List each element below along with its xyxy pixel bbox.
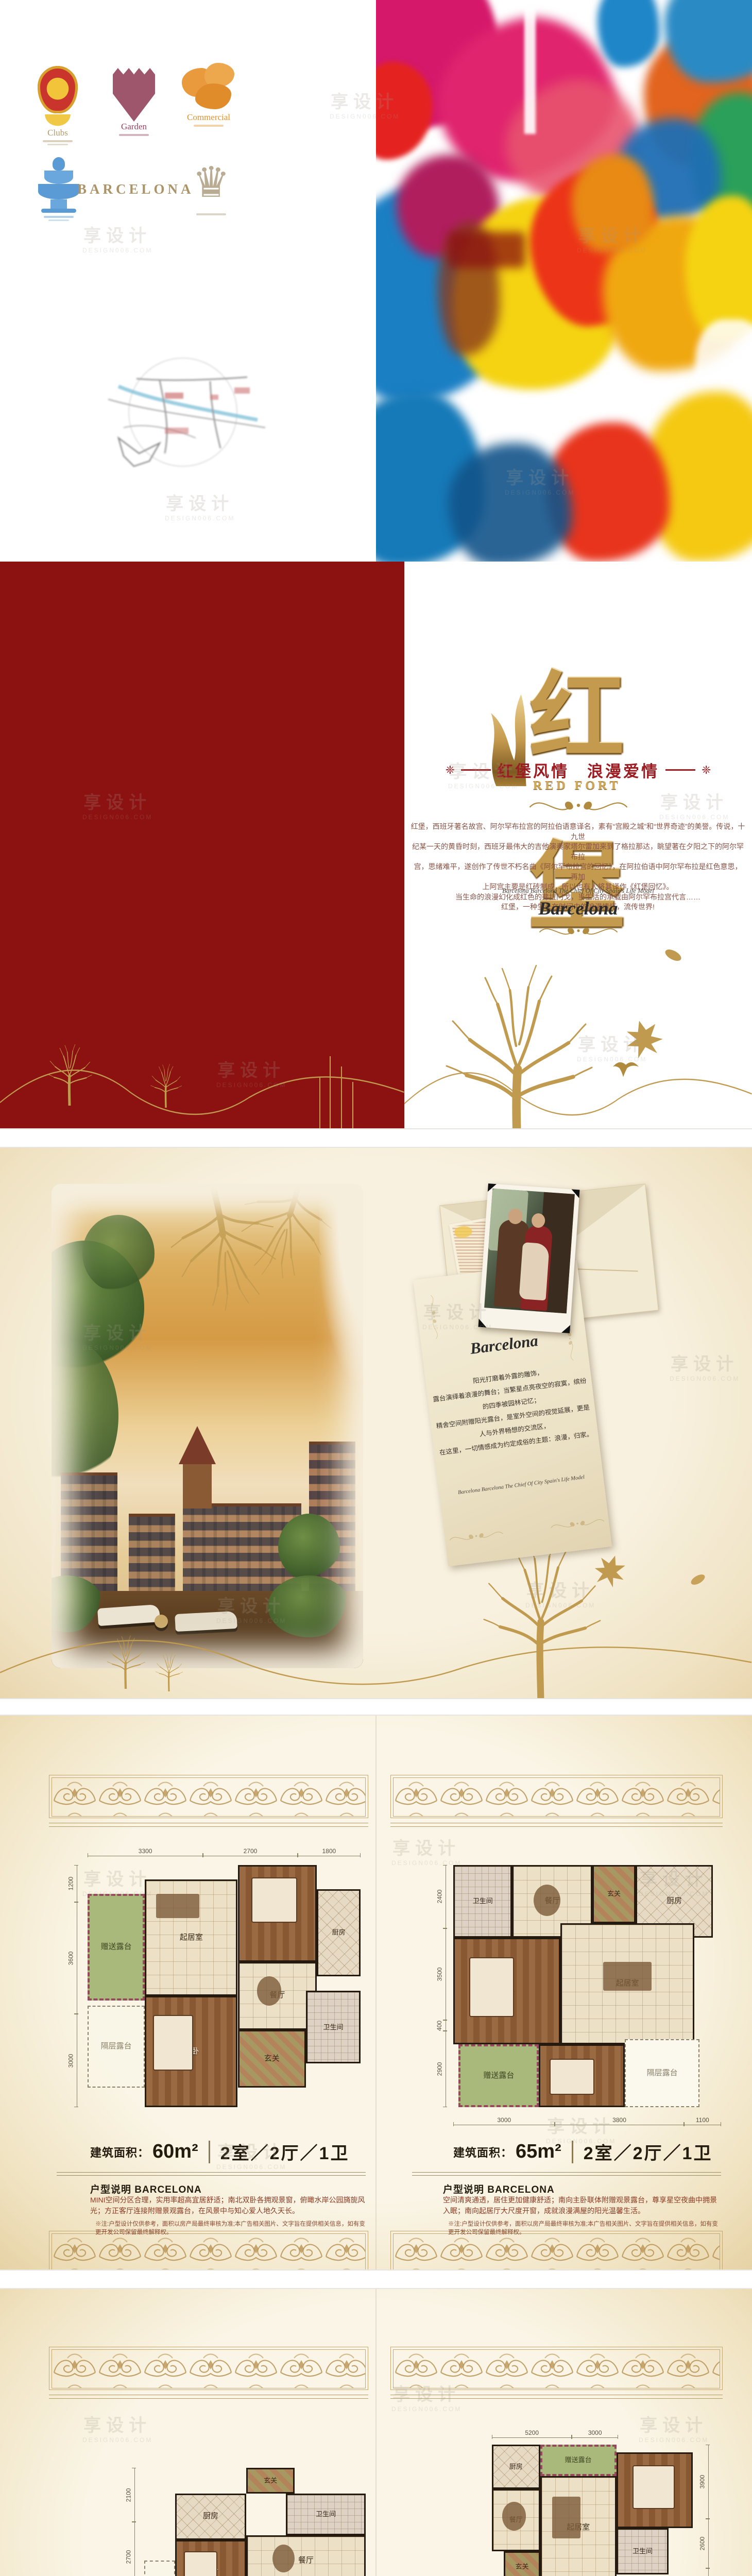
- band-rule: [49, 2395, 368, 2399]
- area-value: 60m²: [152, 2141, 198, 2163]
- band-rule: [390, 2395, 723, 2399]
- room-kitchen: 厨房: [175, 2494, 246, 2540]
- plan60-area-row: 建筑面积： 60m² 2室／2厅／1卫: [90, 2139, 349, 2164]
- emblem-garden: Garden: [106, 68, 162, 136]
- room-terrace: 赠送露台: [458, 2044, 539, 2107]
- room-kitchen: 厨房: [317, 1889, 361, 1976]
- band-rule: [390, 1823, 723, 1827]
- emblem-fountain: [33, 157, 84, 221]
- rule: [57, 2172, 366, 2176]
- gold-bird-icon: [613, 1059, 639, 1077]
- layout-value: 2室／2厅／1卫: [220, 2139, 350, 2164]
- emblem-commercial-label: Commercial: [173, 112, 245, 123]
- barcelona-script: Barcelona: [404, 897, 752, 919]
- floorplan-60: 赠送露台 隔层露台 起居室 主卧 次卧 餐厅 厨房 卫生间 玄关: [88, 1865, 361, 2107]
- emblem-garden-label: Garden: [106, 122, 162, 132]
- redfort-logo: 红堡 RED FORT: [482, 639, 703, 814]
- paragraph-line: 宫，思绪难平，遂创作了传世不朽名曲《阿尔罕布拉宫的回忆》，在阿拉伯语中阿尔罕布拉…: [411, 862, 745, 882]
- paragraph-line: 纪某一天的黄昏时刻，西班牙最伟大的吉他演奏家塔尔雷加来到了格拉那达，眺望著在夕阳…: [411, 842, 745, 862]
- room-terrace: 赠送露台: [88, 1894, 145, 2001]
- ornament-band: [390, 2231, 723, 2274]
- ornament-band: [49, 2347, 368, 2390]
- plan75-dims-right: 3900260048002400: [696, 2445, 709, 2576]
- ornament-band: [390, 2347, 723, 2390]
- area-value: 65m²: [516, 2141, 561, 2163]
- room-entry: 玄关: [504, 2551, 540, 2576]
- emblem-commercial-subline: [194, 125, 224, 127]
- emblem-clubs-subline2: [47, 144, 68, 145]
- room-terrace-top: 赠送露台: [540, 2445, 617, 2476]
- panel-gap: [0, 1698, 752, 1716]
- slogan-en: Barcelona Barcelona The Chief Of City Sp…: [404, 887, 752, 895]
- red-page: [0, 562, 404, 1128]
- couple-photo: [484, 1189, 575, 1314]
- panel-plans-60-65: 330027001800 120036003000 赠送露台 隔层露台 起居室 …: [0, 1716, 752, 2269]
- paint-splash-art: [376, 0, 752, 562]
- plan60-dims-left: 120036003000: [65, 1865, 77, 2107]
- emblem-clubs-subline: [43, 140, 73, 142]
- area-divider: [572, 2141, 573, 2163]
- tagline-dash-left: [461, 769, 491, 771]
- fountain-icon: [37, 157, 80, 214]
- tagline-text: 红堡风情 浪漫爱情: [497, 758, 659, 782]
- room-entry: 玄关: [592, 1865, 635, 1923]
- band-rule: [49, 1823, 368, 1827]
- garden-crest-icon: [113, 68, 155, 122]
- damask-corner: [416, 1292, 452, 1342]
- floorplan-75: 厨房 赠送露台 次卧 餐厅 起居室 玄关 卫生间 主卧 赠送露台: [492, 2445, 693, 2576]
- gold-tree-small-icon: [149, 1061, 182, 1108]
- plan75-dims-top: 52003000: [492, 2429, 618, 2438]
- blurred-title-area: [448, 232, 525, 268]
- gold-tree-icon: [440, 953, 595, 1128]
- paragraph-line: 红堡，西班牙著名故宫、阿尔罕布拉宫的阿拉伯语意译名，素有“宫殿之城”和“世界奇迹…: [411, 822, 745, 842]
- gold-leaf-icon: [689, 1572, 707, 1587]
- plan60-note: ※注:户型设计仅供参考，面积以房产局最终审核为准;本广告相关图片、文字旨在提供相…: [95, 2219, 368, 2236]
- tagline-ornament-left: ❈: [446, 764, 455, 777]
- tagline-ornament-right: ❈: [702, 764, 711, 777]
- room-dining: 餐厅: [246, 2535, 366, 2576]
- panel-gap: [0, 2269, 752, 2289]
- plan65-area-row: 建筑面积： 65m² 2室／2厅／1卫: [453, 2139, 712, 2164]
- panel-letter: Barcelona 阳光打磨着外露的雕饰， 露台演绎着浪漫的舞台；当繁星点亮夜空…: [0, 1148, 752, 1698]
- emblem-garden-subline: [119, 134, 149, 136]
- emblem-clubs: Clubs: [32, 66, 83, 145]
- emblem-fountain-subline2: [48, 219, 69, 221]
- gold-tree-small-icon: [46, 1041, 93, 1106]
- plan60-desc-header: 户型说明 BARCELONA: [90, 2182, 202, 2196]
- brand-wordmark: BARCELONA: [77, 181, 191, 197]
- note-footer: Barcelona Barcelona The Chief Of City Sp…: [439, 1472, 604, 1498]
- chandelier-icon: ♛: [185, 155, 237, 211]
- room-bath: 卫生间: [286, 2494, 366, 2535]
- tagline-dash-right: [665, 769, 695, 771]
- area-divider: [209, 2141, 210, 2163]
- room-mezzanine-terrace: 隔层露台: [88, 2006, 145, 2088]
- room-bath: 卫生间: [617, 2528, 669, 2575]
- couple-photo-polaroid: [478, 1183, 579, 1333]
- room-bath: 卫生间: [306, 1991, 361, 2063]
- room-entry: 玄关: [238, 2030, 306, 2088]
- panel-redfort: 红堡 RED FORT ❈ 红堡风情 浪漫爱情 ❈ 红堡，西班牙著名故宫、阿尔罕…: [0, 562, 752, 1128]
- rule: [412, 2172, 721, 2176]
- panel-cover: Clubs Garden Commercial BARCELONA: [0, 0, 752, 562]
- site-sketch-map: [88, 350, 273, 474]
- plan65-desc: 空间清爽通透，居住更加健康舒适；南向主卧联体附赠观景露台，尊享星空夜曲中拥景入眠…: [443, 2195, 724, 2216]
- area-label: 建筑面积：: [453, 2144, 512, 2160]
- swirl-divider: [537, 923, 620, 940]
- emblem-chandelier-subline: [196, 213, 226, 215]
- plan65-note: ※注:户型设计仅供参考，面积以房产局最终审核为准;本广告相关图片、文字旨在提供相…: [448, 2219, 724, 2236]
- tagline-row: ❈ 红堡风情 浪漫爱情 ❈: [404, 758, 752, 782]
- room-entry: 玄关: [246, 2468, 295, 2494]
- ornament-band: [49, 1775, 368, 1818]
- emblem-commercial: Commercial: [173, 63, 245, 127]
- emblem-fountain-subline: [44, 216, 74, 218]
- gold-tree-small-icon: [155, 1650, 183, 1691]
- redfort-intro-page: 红堡 RED FORT ❈ 红堡风情 浪漫爱情 ❈ 红堡，西班牙著名故宫、阿尔罕…: [404, 562, 752, 1128]
- panel-gap: [0, 1128, 752, 1148]
- clubs-crest-icon: [38, 66, 78, 113]
- emblem-clubs-label: Clubs: [32, 128, 83, 138]
- ornament-band: [390, 1775, 723, 1818]
- plan65-dims-left: 240035004002900: [434, 1865, 446, 2107]
- room-kitchen: 厨房: [492, 2445, 540, 2489]
- damask-corner: [447, 1521, 506, 1552]
- floorplan-65: 卫生间 餐厅 玄关 厨房 主卧 起居室 赠送露台 次卧 隔层露台: [453, 1865, 721, 2107]
- plan65-desc-header: 户型说明 BARCELONA: [443, 2182, 555, 2196]
- plan70-dims-left: 210027003450750: [123, 2468, 135, 2576]
- plan65-dims-bottom: 300038001100: [453, 2116, 721, 2125]
- room-bath: 卫生间: [453, 1865, 512, 1938]
- plan60-dims-top: 330027001800: [88, 1848, 361, 1856]
- room-mezzanine-terrace: 隔层露台: [144, 2561, 175, 2576]
- plan60-desc: MINI空间分区合理，实用率超高宜居舒适；南北双卧各拥观景窗，俯瞰水岸公园旖旎风…: [90, 2195, 368, 2216]
- ornament-band: [49, 2231, 368, 2274]
- swirl-divider: [527, 796, 630, 817]
- note-body: 阳光打磨着外露的雕饰， 露台演绎着浪漫的舞台；当繁星点亮夜空的寂寞，缤纷 的四季…: [429, 1361, 596, 1460]
- panel-plans-70-75: 210027003450750 玄关 厨房 卫生间 次卧 餐厅 起居室 主卧 隔…: [0, 2289, 752, 2576]
- gold-tree-small-icon: [106, 1632, 146, 1689]
- layout-value: 2室／2厅／1卫: [584, 2139, 713, 2164]
- flame-icon: [482, 639, 533, 809]
- room-mezzanine-terrace: 隔层露台: [625, 2039, 700, 2107]
- floorplan-70: 玄关 厨房 卫生间 次卧 餐厅 起居室 主卧 隔层露台 赠送露台: [144, 2468, 366, 2576]
- damask-corner: [548, 1509, 607, 1539]
- commercial-splash-icon: [178, 63, 240, 112]
- emblem-chandelier: ♛: [185, 155, 237, 215]
- brochure-page: Clubs Garden Commercial BARCELONA: [0, 0, 752, 2576]
- area-label: 建筑面积：: [90, 2144, 149, 2160]
- white-shawl: [519, 1242, 550, 1300]
